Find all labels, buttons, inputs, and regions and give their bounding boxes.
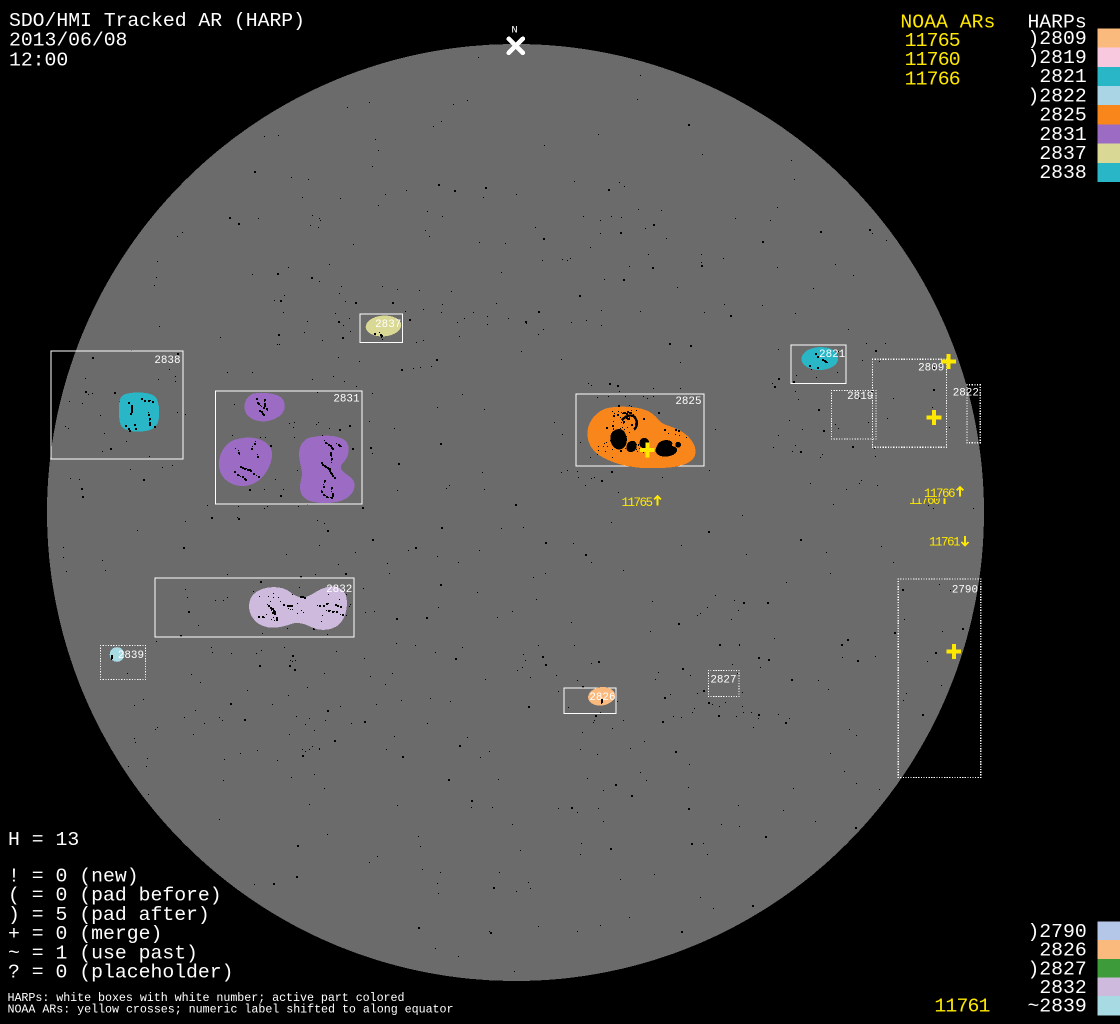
svg-text:11766: 11766 (924, 487, 956, 501)
svg-text:2837: 2837 (375, 319, 401, 331)
svg-text:2838: 2838 (1039, 162, 1086, 184)
svg-text:11761: 11761 (934, 996, 990, 1018)
svg-text:2826: 2826 (589, 692, 615, 704)
svg-text:11761: 11761 (929, 536, 961, 550)
svg-text:2831: 2831 (333, 394, 360, 406)
svg-text:? = 0 (placeholder): ? = 0 (placeholder) (8, 962, 234, 984)
svg-text:2809: 2809 (918, 363, 944, 375)
svg-text:2825: 2825 (675, 396, 701, 408)
svg-text:NOAA ARs: yellow crosses; nume: NOAA ARs: yellow crosses; numeric label … (8, 1002, 454, 1016)
svg-text:H = 13: H = 13 (8, 829, 79, 851)
svg-text:2838: 2838 (154, 355, 180, 367)
svg-text:2827: 2827 (710, 674, 736, 686)
svg-text:2839: 2839 (118, 650, 144, 662)
svg-text:2821: 2821 (819, 349, 846, 361)
svg-text:SDO/HMI Tracked AR (HARP): SDO/HMI Tracked AR (HARP) (9, 10, 305, 32)
svg-text:2790: 2790 (952, 585, 978, 597)
svg-text:2822: 2822 (953, 388, 979, 400)
svg-text:11765: 11765 (622, 496, 654, 510)
svg-text:2832: 2832 (326, 584, 352, 596)
svg-text:N: N (511, 25, 517, 37)
svg-text:11766: 11766 (905, 68, 961, 90)
svg-text:2819: 2819 (847, 391, 873, 403)
svg-text:2013/06/08: 2013/06/08 (9, 30, 127, 52)
svg-text:~2839: ~2839 (1027, 996, 1086, 1018)
svg-text:12:00: 12:00 (9, 49, 68, 71)
